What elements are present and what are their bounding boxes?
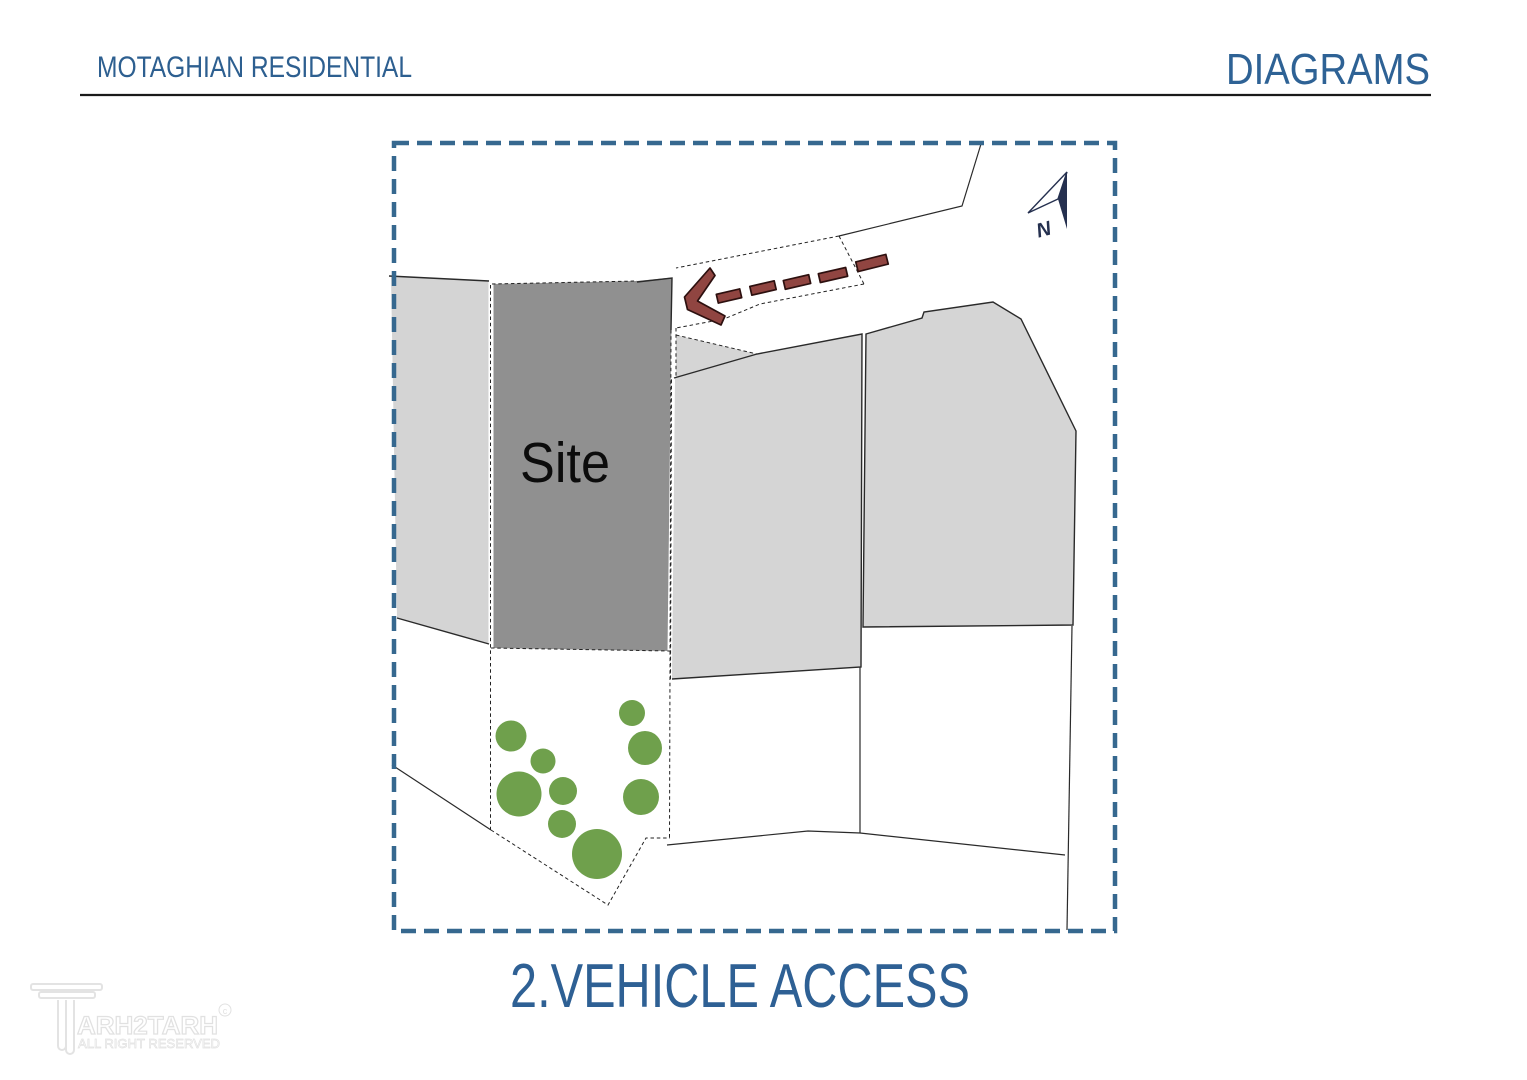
svg-text:Site: Site bbox=[520, 431, 610, 495]
svg-text:MOTAGHIAN RESIDENTIAL: MOTAGHIAN RESIDENTIAL bbox=[97, 51, 412, 84]
svg-text:2.VEHICLE ACCESS: 2.VEHICLE ACCESS bbox=[510, 952, 970, 1021]
svg-text:c: c bbox=[223, 1006, 228, 1016]
svg-text:ALL RIGHT RESERVED: ALL RIGHT RESERVED bbox=[78, 1036, 220, 1051]
svg-text:DIAGRAMS: DIAGRAMS bbox=[1226, 45, 1430, 94]
svg-text:N: N bbox=[1034, 217, 1054, 242]
